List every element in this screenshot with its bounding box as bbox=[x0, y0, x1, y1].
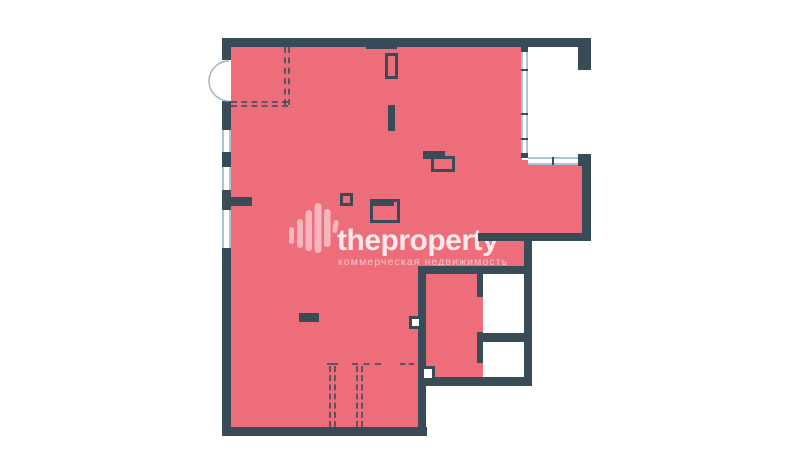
dashed-mark-entry-h1 bbox=[231, 101, 288, 103]
wall-mid-vertical bbox=[418, 266, 426, 436]
wall-sanitary-middle bbox=[477, 333, 532, 342]
dashed-mark-bottom-v4 bbox=[361, 366, 363, 427]
wall-bottom-main bbox=[222, 427, 427, 436]
window-divider-4 bbox=[552, 157, 554, 165]
wall-niche-square bbox=[409, 316, 422, 329]
wall-left-lower bbox=[222, 248, 231, 435]
corner-niche-square bbox=[421, 366, 435, 381]
double-door-swing-icon bbox=[200, 58, 231, 104]
wall-sanitary-left-1 bbox=[477, 274, 483, 297]
wall-sanitary-right bbox=[524, 241, 532, 386]
dashed-mark-bottom-v1 bbox=[329, 366, 331, 427]
wall-right-section-top bbox=[478, 233, 591, 241]
wall-left-pier-3 bbox=[222, 152, 231, 167]
dashed-mark-bottom-h1 bbox=[327, 363, 338, 365]
dashed-mark-bottom-v3 bbox=[356, 366, 358, 427]
watermark-brand-text: theproperty bbox=[337, 226, 498, 256]
column-bar bbox=[388, 105, 395, 131]
dashed-mark-bottom-v2 bbox=[334, 366, 336, 427]
window-left-1 bbox=[222, 130, 231, 152]
wall-sanitary-top bbox=[418, 266, 532, 274]
loggia-niche bbox=[528, 47, 578, 157]
wall-left-pier-4 bbox=[222, 190, 231, 210]
floor-plan: theproperty коммерческая недвижимость bbox=[0, 0, 800, 471]
wall-left-pier-2 bbox=[222, 101, 231, 130]
shaft-outline bbox=[385, 53, 398, 79]
wall-pier-bar bbox=[299, 313, 319, 322]
sanitary-room-2 bbox=[483, 342, 524, 378]
dashed-mark-entry-v2 bbox=[288, 47, 290, 105]
wall-right bbox=[582, 154, 591, 241]
window-cap-top bbox=[521, 47, 528, 52]
wall-right-corner-block bbox=[578, 154, 591, 166]
watermark-logo-icon bbox=[286, 200, 340, 256]
wall-sanitary-bottom bbox=[418, 377, 532, 386]
wall-stub-top bbox=[366, 46, 397, 49]
floor-area-right-extension bbox=[522, 160, 586, 241]
dashed-mark-bottom-h3 bbox=[400, 363, 414, 365]
wall-left-stub bbox=[231, 197, 252, 206]
wall-top bbox=[222, 38, 591, 47]
dashed-mark-entry-v1 bbox=[284, 47, 286, 105]
window-divider-3 bbox=[521, 138, 528, 140]
fixture-thick-top-cap bbox=[370, 199, 394, 206]
sanitary-room-1 bbox=[483, 274, 524, 334]
window-cap-bottom bbox=[521, 153, 528, 158]
window-left-3 bbox=[222, 210, 231, 248]
wall-top-right-leg bbox=[578, 47, 591, 70]
window-right-vertical bbox=[521, 47, 528, 158]
dashed-mark-entry-h2 bbox=[231, 105, 288, 107]
dashed-mark-bottom-h2 bbox=[352, 363, 381, 365]
fixture-outline-right bbox=[431, 156, 455, 172]
window-divider-2 bbox=[521, 113, 528, 115]
column-square-outline bbox=[340, 193, 353, 206]
window-left-2 bbox=[222, 167, 231, 190]
window-divider-1 bbox=[521, 69, 528, 71]
floor-area-corridor bbox=[422, 266, 483, 381]
wall-sanitary-left-3 bbox=[477, 342, 483, 363]
